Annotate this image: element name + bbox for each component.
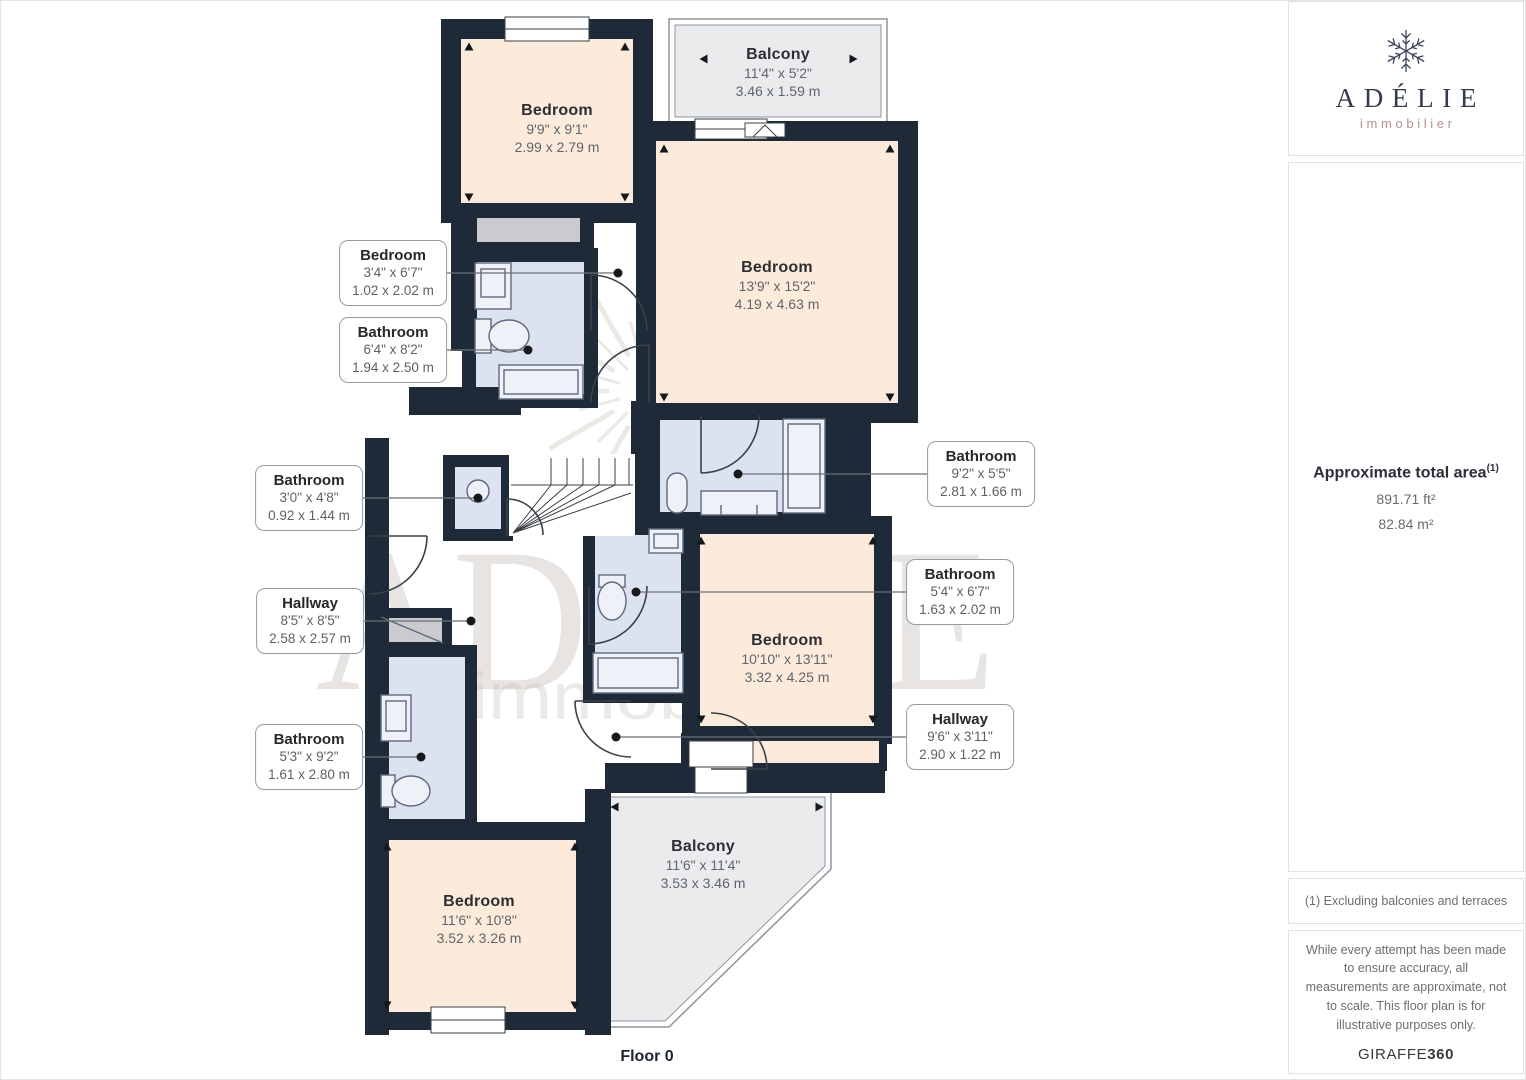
- room-name: Bathroom: [919, 566, 1001, 583]
- room-dim-ft: 9'9" x 9'1": [515, 120, 600, 138]
- floor-plan-drawing: ADÉLIE immobilier: [1, 1, 1289, 1080]
- room-dim-ft: 5'3" x 9'2": [268, 748, 350, 766]
- callout-bathroom-left: Bathroom 3'0" x 4'8" 0.92 x 1.44 m: [255, 465, 363, 531]
- room-dim-m: 2.81 x 1.66 m: [940, 483, 1022, 501]
- room-bedroom-mid: [691, 525, 883, 735]
- area-title-text: Approximate total area: [1313, 464, 1486, 481]
- room-dim-ft: 6'4" x 8'2": [352, 341, 434, 359]
- room-dim-ft: 11'6" x 10'8": [437, 911, 522, 929]
- label-bedroom-top-left: Bedroom 9'9" x 9'1" 2.99 x 2.79 m: [515, 102, 600, 156]
- room-dim-ft: 3'0" x 4'8": [268, 489, 350, 507]
- room-dim-m: 3.52 x 3.26 m: [437, 929, 522, 947]
- callout-bathroom-bottom-left: Bathroom 5'3" x 9'2" 1.61 x 2.80 m: [255, 724, 363, 790]
- floor-plan: ADÉLIE immobilier: [1, 1, 1289, 1080]
- giraffe360-logo: GIRAFFE360: [1358, 1046, 1454, 1063]
- footnote-text: (1) Excluding balconies and terraces: [1305, 894, 1507, 908]
- room-name: Bathroom: [352, 324, 434, 341]
- room-dim-ft: 8'5" x 8'5": [269, 612, 351, 630]
- label-bedroom-mid: Bedroom 10'10" x 13'11" 3.32 x 4.25 m: [741, 632, 832, 686]
- callout-hallway-right: Hallway 9'6" x 3'11" 2.90 x 1.22 m: [906, 704, 1014, 770]
- room-dim-m: 1.02 x 2.02 m: [352, 282, 434, 300]
- label-bedroom-large: Bedroom 13'9" x 15'2" 4.19 x 4.63 m: [735, 259, 820, 313]
- footnote-card: (1) Excluding balconies and terraces: [1288, 878, 1524, 924]
- room-dim-m: 4.19 x 4.63 m: [735, 295, 820, 313]
- area-value-ft: 891.71 ft²: [1289, 491, 1523, 507]
- balcony-bottom-shape: [604, 791, 831, 1027]
- room-name: Bedroom: [437, 893, 522, 911]
- room-closet-small: [469, 211, 587, 249]
- disclaimer-card: While every attempt has been made to ens…: [1288, 930, 1524, 1074]
- room-dim-m: 3.32 x 4.25 m: [741, 668, 832, 686]
- room-name: Bathroom: [268, 731, 350, 748]
- area-footnote-marker: (1): [1487, 463, 1499, 474]
- sidebar: ADÉLIE immobilier Approximate total area…: [1287, 1, 1525, 1080]
- room-name: Hallway: [919, 711, 1001, 728]
- room-dim-ft: 9'2" x 5'5": [940, 465, 1022, 483]
- room-name: Balcony: [736, 46, 821, 64]
- room-dim-m: 1.94 x 2.50 m: [352, 359, 434, 377]
- room-dim-ft: 5'4" x 6'7": [919, 583, 1001, 601]
- room-dim-ft: 9'6" x 3'11": [919, 728, 1001, 746]
- room-name: Bedroom: [735, 259, 820, 277]
- room-name: Bedroom: [741, 632, 832, 650]
- snowflake-icon: [1382, 27, 1430, 75]
- room-dim-ft: 13'9" x 15'2": [735, 277, 820, 295]
- room-dim-m: 3.46 x 1.59 m: [736, 82, 821, 100]
- floor-label: Floor 0: [620, 1048, 673, 1066]
- callout-bedroom-small: Bedroom 3'4" x 6'7" 1.02 x 2.02 m: [339, 240, 447, 306]
- room-dim-ft: 3'4" x 6'7": [352, 264, 434, 282]
- room-name: Bedroom: [515, 102, 600, 120]
- room-name: Bathroom: [268, 472, 350, 489]
- area-card: Approximate total area(1) 891.71 ft² 82.…: [1288, 162, 1524, 872]
- room-dim-m: 1.61 x 2.80 m: [268, 766, 350, 784]
- logo-card: ADÉLIE immobilier: [1288, 1, 1524, 156]
- staircase: [509, 454, 635, 536]
- brand-subtitle: immobilier: [1356, 116, 1455, 131]
- label-balcony-top: Balcony 11'4" x 5'2" 3.46 x 1.59 m: [736, 46, 821, 100]
- callout-bathroom-mid: Bathroom 5'4" x 6'7" 1.63 x 2.02 m: [906, 559, 1014, 625]
- room-dim-m: 2.58 x 2.57 m: [269, 630, 351, 648]
- floorplan-page: ADÉLIE immobilier: [0, 0, 1526, 1080]
- area-value-m: 82.84 m²: [1289, 516, 1523, 532]
- room-dim-m: 1.63 x 2.02 m: [919, 601, 1001, 619]
- room-dim-ft: 11'4" x 5'2": [736, 64, 821, 82]
- room-name: Balcony: [661, 838, 746, 856]
- label-balcony-bottom: Balcony 11'6" x 11'4" 3.53 x 3.46 m: [661, 838, 746, 892]
- room-dim-m: 2.99 x 2.79 m: [515, 138, 600, 156]
- giraffe-text: GIRAFFE: [1358, 1046, 1427, 1063]
- room-dim-m: 2.90 x 1.22 m: [919, 746, 1001, 764]
- room-name: Bathroom: [940, 448, 1022, 465]
- callout-bathroom-right: Bathroom 9'2" x 5'5" 2.81 x 1.66 m: [927, 441, 1035, 507]
- label-bedroom-bottom: Bedroom 11'6" x 10'8" 3.52 x 3.26 m: [437, 893, 522, 947]
- room-name: Hallway: [269, 595, 351, 612]
- room-dim-m: 0.92 x 1.44 m: [268, 507, 350, 525]
- callout-hallway-left: Hallway 8'5" x 8'5" 2.58 x 2.57 m: [256, 588, 364, 654]
- giraffe-360: 360: [1427, 1046, 1454, 1063]
- area-title: Approximate total area(1): [1289, 463, 1523, 482]
- disclaimer-text: While every attempt has been made to ens…: [1304, 941, 1508, 1035]
- room-name: Bedroom: [352, 247, 434, 264]
- room-dim-m: 3.53 x 3.46 m: [661, 874, 746, 892]
- room-dim-ft: 10'10" x 13'11": [741, 650, 832, 668]
- brand-name: ADÉLIE: [1327, 83, 1485, 114]
- room-dim-ft: 11'6" x 11'4": [661, 856, 746, 874]
- callout-bathroom-ensuite: Bathroom 6'4" x 8'2" 1.94 x 2.50 m: [339, 317, 447, 383]
